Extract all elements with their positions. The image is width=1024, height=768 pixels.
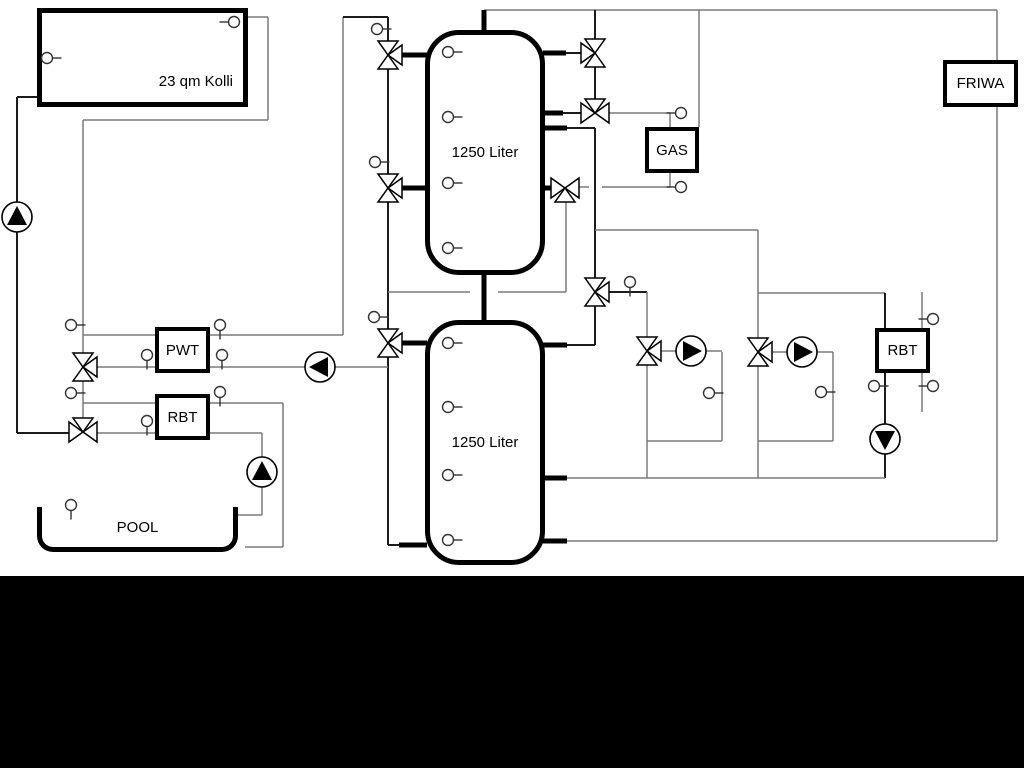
temperature-sensor-icon: [443, 470, 463, 481]
pool-pump-icon: [247, 457, 277, 487]
gas-return-valve-icon: [551, 178, 579, 202]
pool-return-valve-icon: [69, 418, 97, 442]
gas-flow-valve-icon: [581, 99, 609, 123]
temperature-sensor-icon: [217, 350, 228, 370]
pool-circuit-pump-icon: [305, 352, 335, 382]
temperature-sensor-icon: [66, 320, 86, 331]
temperature-sensor-icon: [443, 402, 463, 413]
temperature-sensor-icon: [443, 243, 463, 254]
temperature-sensor-icon: [66, 388, 86, 399]
distribution-valve-icon: [585, 278, 609, 306]
diagram-canvas: 1250 Liter1250 LiterGASFRIWAPWTRBTRBT23 …: [0, 0, 1024, 768]
temperature-sensor-icon: [142, 416, 153, 436]
temperature-sensor-icon: [667, 182, 687, 193]
temperature-sensor-icon: [443, 535, 463, 546]
temperature-sensor-icon: [220, 17, 240, 28]
temperature-sensor-icon: [443, 338, 463, 349]
tank1-top-valve-icon: [581, 39, 605, 67]
temperature-sensor-icon: [370, 157, 390, 168]
temperature-sensor-icon: [667, 108, 687, 119]
heating-circuit-1-valve-icon: [637, 337, 661, 365]
temperature-sensor-icon: [142, 350, 153, 370]
temperature-sensor-icon: [869, 381, 889, 392]
temperature-sensor-icon: [215, 387, 226, 407]
tank1-charge-valve-lower-icon: [378, 174, 402, 202]
solar-pump-icon: [2, 202, 32, 232]
bottom-black-bar: [0, 576, 1024, 768]
temperature-sensor-icon: [66, 500, 77, 520]
temperature-sensor-icon: [919, 314, 939, 325]
temperature-sensor-icon: [443, 112, 463, 123]
temperature-sensor-icon: [42, 53, 62, 64]
temperature-sensor-icon: [369, 312, 389, 323]
temperature-sensor-icon: [816, 387, 836, 398]
temperature-sensor-icon: [704, 388, 724, 399]
heating-circuit-2-valve-icon: [748, 338, 772, 366]
heating-pump-1-icon: [676, 336, 706, 366]
temperature-sensor-icon: [372, 24, 392, 35]
heating-pump-2-icon: [787, 337, 817, 367]
temperature-sensor-icon: [215, 320, 226, 340]
tank1-charge-valve-upper-icon: [378, 41, 402, 69]
pool-exchanger-valve-icon: [73, 353, 97, 381]
return-pump-icon: [870, 424, 900, 454]
tank2-charge-valve-icon: [378, 329, 402, 357]
temperature-sensor-icon: [443, 178, 463, 189]
temperature-sensor-icon: [625, 277, 636, 297]
temperature-sensor-icon: [443, 47, 463, 58]
temperature-sensor-icon: [919, 381, 939, 392]
